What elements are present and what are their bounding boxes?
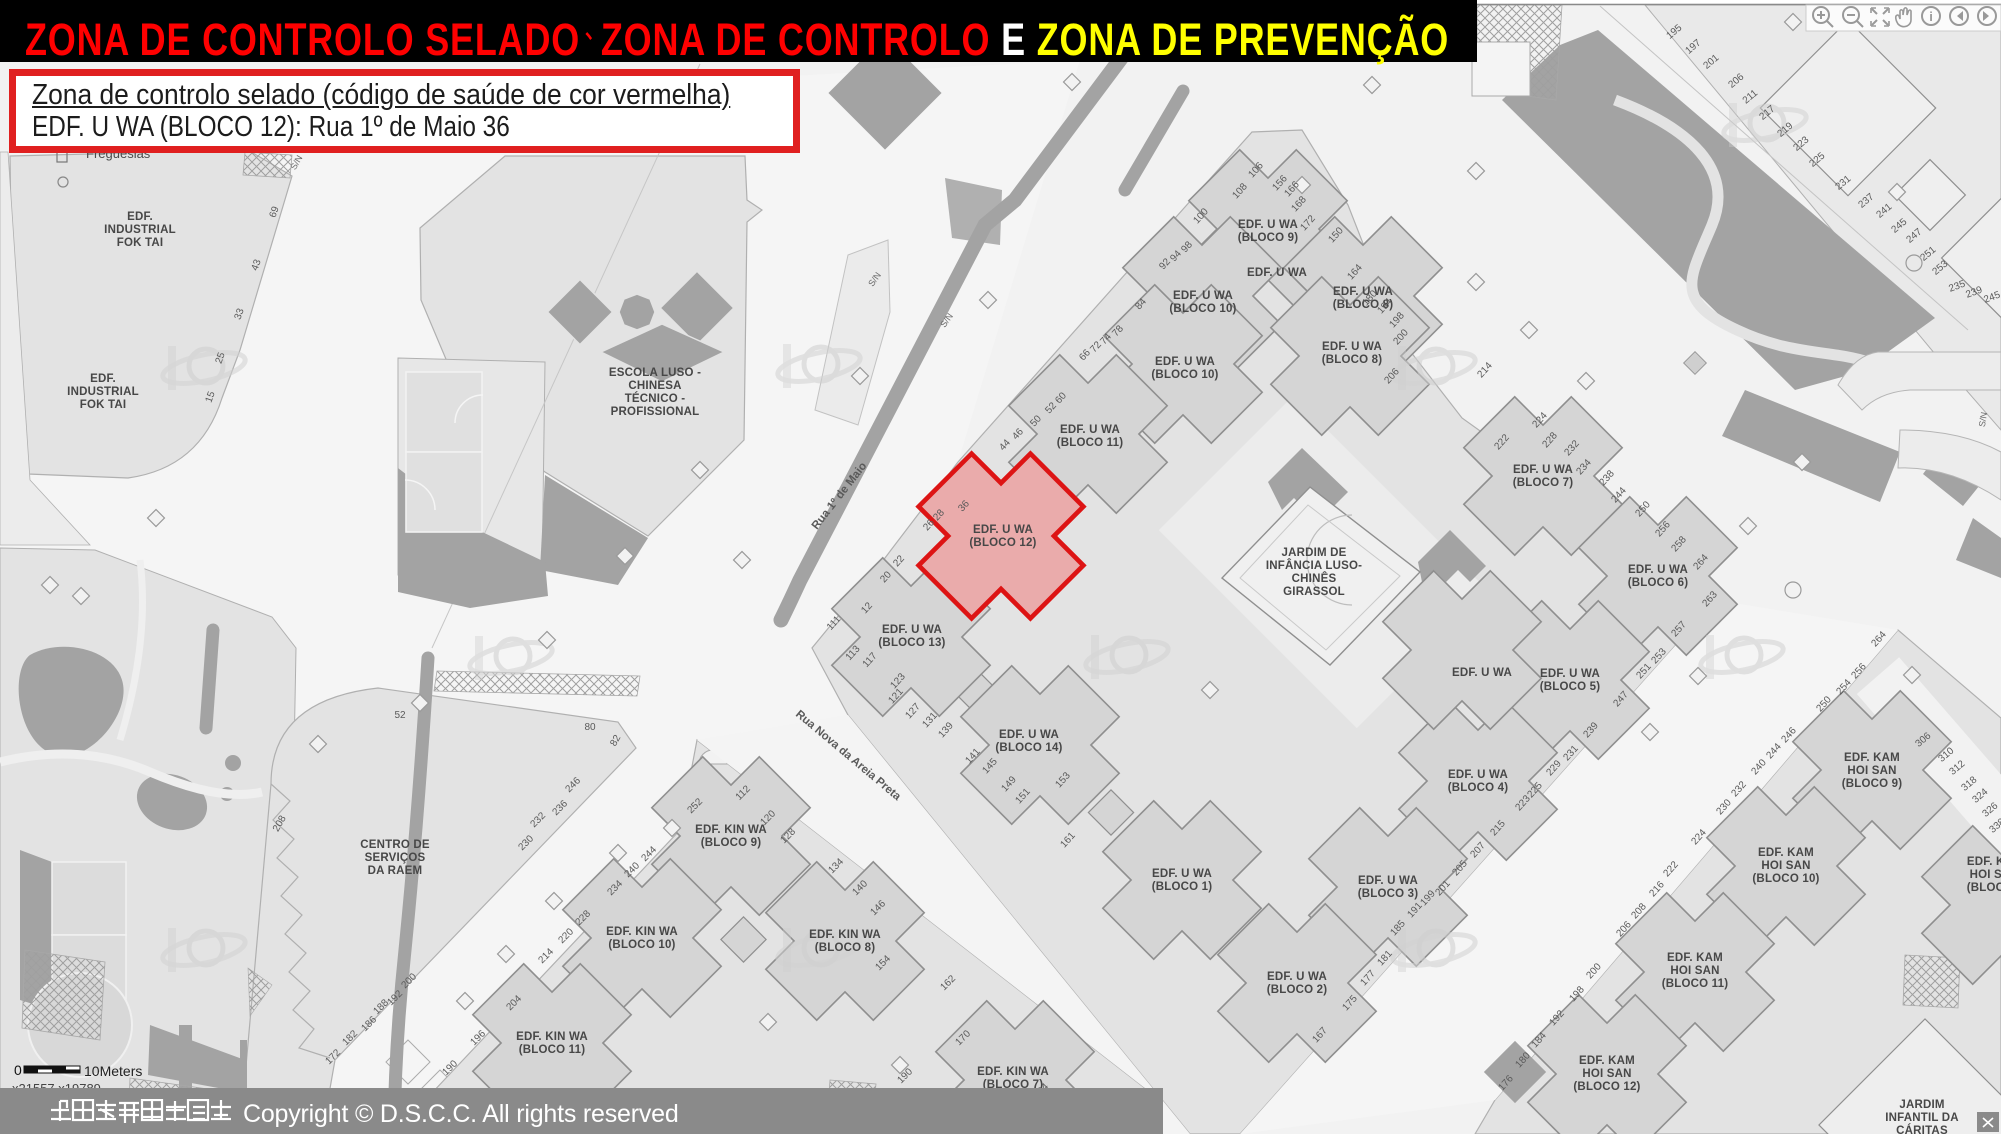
svg-text:EDF. KIN WA(BLOCO 9): EDF. KIN WA(BLOCO 9) [695, 824, 767, 849]
svg-text:EDF. U WA(BLOCO 8): EDF. U WA(BLOCO 8) [1322, 341, 1383, 366]
svg-text:EDF. U WA(BLOCO 7): EDF. U WA(BLOCO 7) [1513, 464, 1574, 489]
svg-text:EDF. U WA(BLOCO 9): EDF. U WA(BLOCO 9) [1238, 219, 1299, 244]
svg-text:EDF. U WA(BLOCO 4): EDF. U WA(BLOCO 4) [1448, 769, 1509, 794]
svg-text:52: 52 [394, 710, 406, 721]
svg-text:EDF. U WA(BLOCO 10): EDF. U WA(BLOCO 10) [1169, 290, 1236, 315]
svg-text:80: 80 [584, 722, 596, 733]
svg-text:EDF. KAMHOI SAN(BLOCO 10): EDF. KAMHOI SAN(BLOCO 10) [1752, 847, 1819, 885]
svg-text:EDF. U WA(BLOCO 13): EDF. U WA(BLOCO 13) [878, 624, 945, 649]
svg-text:EDF. U WA(BLOCO 3): EDF. U WA(BLOCO 3) [1358, 875, 1419, 900]
svg-text:EDF. U WA(BLOCO 14): EDF. U WA(BLOCO 14) [995, 729, 1062, 754]
svg-text:10Meters: 10Meters [84, 1063, 142, 1079]
svg-text:i: i [1929, 9, 1933, 24]
svg-text:EDF. U WA(BLOCO 6): EDF. U WA(BLOCO 6) [1628, 564, 1689, 589]
svg-text:EDF. KIN WA(BLOCO 10): EDF. KIN WA(BLOCO 10) [606, 926, 678, 951]
svg-text:EDF. U WA(BLOCO 1): EDF. U WA(BLOCO 1) [1152, 868, 1213, 893]
svg-text:EDF. U WA(BLOCO 2): EDF. U WA(BLOCO 2) [1267, 971, 1328, 996]
svg-text:EDF. KIN WA(BLOCO 8): EDF. KIN WA(BLOCO 8) [809, 929, 881, 954]
svg-text:EDF. KAHOI SA(BLOCO: EDF. KAHOI SA(BLOCO [1967, 856, 2001, 894]
svg-text:EDF. KAMHOI SAN(BLOCO 11): EDF. KAMHOI SAN(BLOCO 11) [1662, 952, 1729, 990]
svg-text:0: 0 [14, 1062, 22, 1078]
svg-text:EDF. KAMHOI SAN(BLOCO 9): EDF. KAMHOI SAN(BLOCO 9) [1842, 752, 1903, 790]
svg-text:EDF. KAMHOI SAN(BLOCO 12): EDF. KAMHOI SAN(BLOCO 12) [1573, 1055, 1640, 1093]
svg-text:EDF. U WA: EDF. U WA [1452, 667, 1512, 679]
svg-text:EDF. U WA(BLOCO 5): EDF. U WA(BLOCO 5) [1540, 668, 1601, 693]
svg-text:EDF. U WA(BLOCO 11): EDF. U WA(BLOCO 11) [1057, 424, 1124, 449]
svg-text:CENTRO DESERVIÇOSDA RAEM: CENTRO DESERVIÇOSDA RAEM [360, 839, 430, 877]
svg-text:EDF. KIN WA(BLOCO 11): EDF. KIN WA(BLOCO 11) [516, 1031, 588, 1056]
svg-text:EDF. U WA(BLOCO 10): EDF. U WA(BLOCO 10) [1151, 356, 1218, 381]
svg-text:EDF. U WA: EDF. U WA [1247, 267, 1307, 279]
svg-text:EDF. U WA(BLOCO 12): EDF. U WA(BLOCO 12) [969, 524, 1036, 549]
